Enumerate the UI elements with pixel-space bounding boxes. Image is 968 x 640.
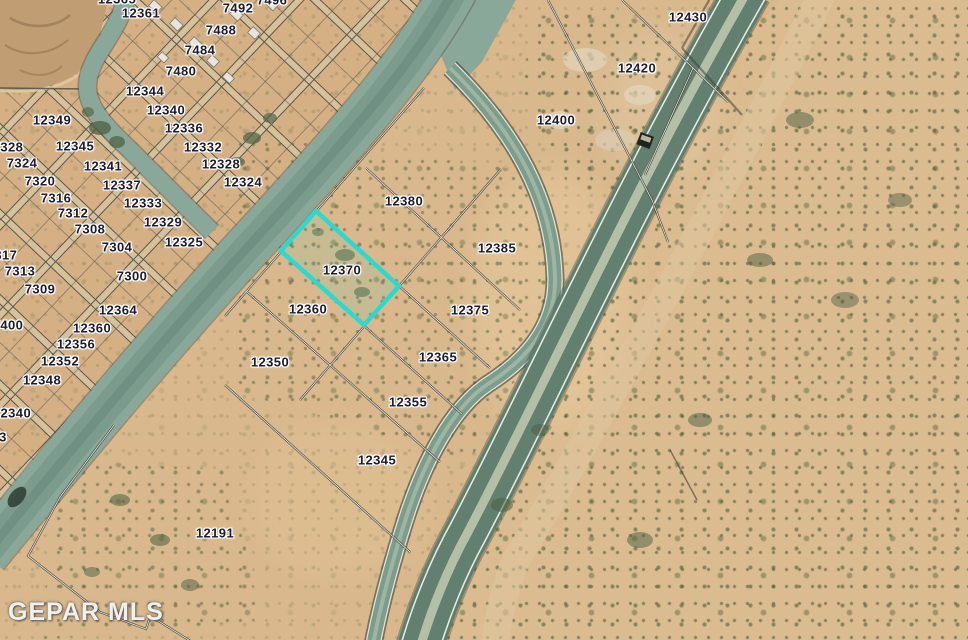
parcel-label: 12336: [165, 121, 203, 136]
sand-wash-2: [600, 30, 720, 180]
parcel-label: 12365: [419, 350, 457, 365]
parcel-label: 12370: [323, 263, 361, 278]
houses: [149, 0, 279, 84]
parcel-label: 12191: [196, 526, 234, 541]
parcel-label: 7324: [7, 156, 38, 171]
parcel-label: 7488: [206, 23, 237, 38]
parcel-label: 7484: [185, 43, 216, 58]
parcel-label: 7496: [257, 0, 288, 8]
parcel-label: 12341: [84, 159, 122, 174]
parcel-label: 7328: [0, 140, 23, 155]
parcel-label: 12348: [23, 373, 61, 388]
parcel-label: 12380: [385, 194, 423, 209]
parcel-label: 12360: [73, 321, 111, 336]
parcel-label: 12365: [98, 0, 136, 7]
parcel-label: 12352: [41, 354, 79, 369]
watermark: GEPAR MLS: [8, 598, 164, 627]
parcel-label: 7492: [223, 1, 254, 16]
parcel-label: 7312: [58, 206, 89, 221]
parcel-label: 12337: [103, 178, 141, 193]
parcel-label: 7320: [25, 174, 56, 189]
parcel-label: 7313: [5, 264, 36, 279]
parcel-label: 7309: [25, 282, 56, 297]
parcel-label: 12340: [147, 103, 185, 118]
parcel-label: 12430: [669, 10, 707, 25]
parcel-label: 12356: [57, 337, 95, 352]
road-a: [87, 0, 212, 232]
parcel-label: 12400: [537, 113, 575, 128]
parcel-label: 12344: [126, 84, 164, 99]
parcel-label: 7400: [0, 318, 23, 333]
parcel-label: 12328: [202, 157, 240, 172]
sand-hill: [0, 0, 108, 91]
parcel-label: 7480: [166, 64, 197, 79]
parcel-label: 7308: [75, 222, 106, 237]
parcel-label: 7316: [41, 191, 72, 206]
parcel-label: 12360: [289, 302, 327, 317]
parcel-label: 12329: [144, 215, 182, 230]
parcel-label: 12340: [0, 406, 31, 421]
parcel-label: 12364: [99, 303, 137, 318]
parcel-label: 3: [0, 430, 7, 445]
parcel-label: 7304: [102, 240, 133, 255]
parcel-label: 12361: [122, 6, 160, 21]
parcel-label: 7317: [0, 248, 17, 263]
parcel-label: 12325: [165, 235, 203, 250]
parcel-label: 12345: [56, 139, 94, 154]
parcel-label: 7300: [117, 269, 148, 284]
sand-wash-1: [470, 170, 630, 430]
parcel-label: 12355: [389, 395, 427, 410]
parcel-label: 12350: [251, 355, 289, 370]
parcel-label: 12349: [33, 113, 71, 128]
sand-wash-3: [250, 420, 430, 580]
highlighted-parcel-outline[interactable]: [281, 211, 399, 325]
parcel-label: 12333: [124, 196, 162, 211]
parcel-label: 12324: [224, 175, 262, 190]
parcel-label: 12332: [184, 140, 222, 155]
map-canvas[interactable]: 1236512361749674927488748474801234412340…: [0, 0, 968, 640]
